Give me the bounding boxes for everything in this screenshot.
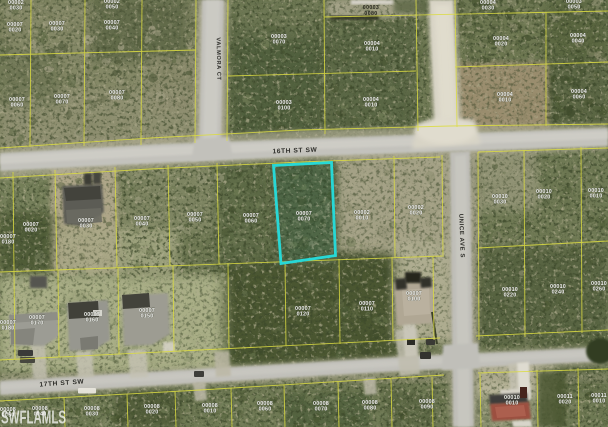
svg-text:0030: 0030 bbox=[51, 27, 64, 33]
svg-text:0050: 0050 bbox=[568, 5, 581, 11]
svg-text:0050: 0050 bbox=[189, 218, 202, 224]
svg-text:0060: 0060 bbox=[259, 407, 272, 413]
svg-text:0070: 0070 bbox=[56, 100, 69, 106]
svg-text:0060: 0060 bbox=[245, 219, 258, 225]
svg-text:0030: 0030 bbox=[482, 6, 495, 12]
svg-text:0150: 0150 bbox=[141, 314, 154, 320]
svg-text:0030: 0030 bbox=[10, 6, 23, 12]
svg-text:0120: 0120 bbox=[297, 312, 310, 318]
svg-text:0260: 0260 bbox=[593, 287, 606, 293]
svg-text:0020: 0020 bbox=[146, 410, 159, 416]
svg-text:0170: 0170 bbox=[31, 321, 44, 327]
svg-text:0160: 0160 bbox=[86, 318, 99, 324]
svg-text:0220: 0220 bbox=[504, 293, 517, 299]
svg-text:0070: 0070 bbox=[315, 407, 328, 413]
svg-text:0050: 0050 bbox=[106, 5, 119, 11]
svg-text:0010: 0010 bbox=[590, 194, 603, 200]
svg-text:0020: 0020 bbox=[495, 42, 508, 48]
svg-text:0080: 0080 bbox=[111, 96, 124, 102]
svg-text:0010: 0010 bbox=[593, 399, 606, 405]
svg-text:0040: 0040 bbox=[136, 222, 149, 228]
svg-text:SWFLAMLS: SWFLAMLS bbox=[1, 407, 66, 427]
svg-text:0030: 0030 bbox=[494, 200, 507, 206]
svg-text:0080: 0080 bbox=[364, 406, 377, 412]
svg-text:0020: 0020 bbox=[25, 228, 38, 234]
svg-text:0040: 0040 bbox=[106, 26, 119, 32]
svg-text:0060: 0060 bbox=[573, 95, 586, 101]
svg-text:0180: 0180 bbox=[2, 240, 15, 246]
svg-text:0030: 0030 bbox=[80, 224, 93, 230]
svg-text:0010: 0010 bbox=[356, 216, 369, 222]
svg-text:0010: 0010 bbox=[366, 47, 379, 53]
svg-text:0110: 0110 bbox=[361, 307, 374, 313]
svg-text:0020: 0020 bbox=[9, 28, 22, 34]
svg-text:0030: 0030 bbox=[86, 412, 99, 418]
svg-text:VALMORA CT: VALMORA CT bbox=[215, 37, 222, 80]
svg-text:0240: 0240 bbox=[552, 290, 565, 296]
svg-text:0040: 0040 bbox=[572, 39, 585, 45]
svg-text:0080: 0080 bbox=[364, 11, 377, 17]
svg-text:0090: 0090 bbox=[421, 405, 434, 411]
svg-text:0100: 0100 bbox=[278, 106, 291, 112]
svg-text:0020: 0020 bbox=[538, 195, 551, 201]
svg-text:0010: 0010 bbox=[365, 103, 378, 109]
svg-text:0020: 0020 bbox=[559, 400, 572, 406]
svg-text:0010: 0010 bbox=[204, 409, 217, 415]
svg-text:0020: 0020 bbox=[410, 211, 423, 217]
svg-text:0100: 0100 bbox=[408, 297, 421, 303]
svg-text:0010: 0010 bbox=[506, 401, 519, 407]
svg-text:0060: 0060 bbox=[11, 103, 24, 109]
svg-text:0010: 0010 bbox=[499, 98, 512, 104]
svg-text:0180: 0180 bbox=[2, 326, 15, 332]
svg-text:0070: 0070 bbox=[298, 217, 311, 223]
svg-text:0070: 0070 bbox=[273, 40, 286, 46]
